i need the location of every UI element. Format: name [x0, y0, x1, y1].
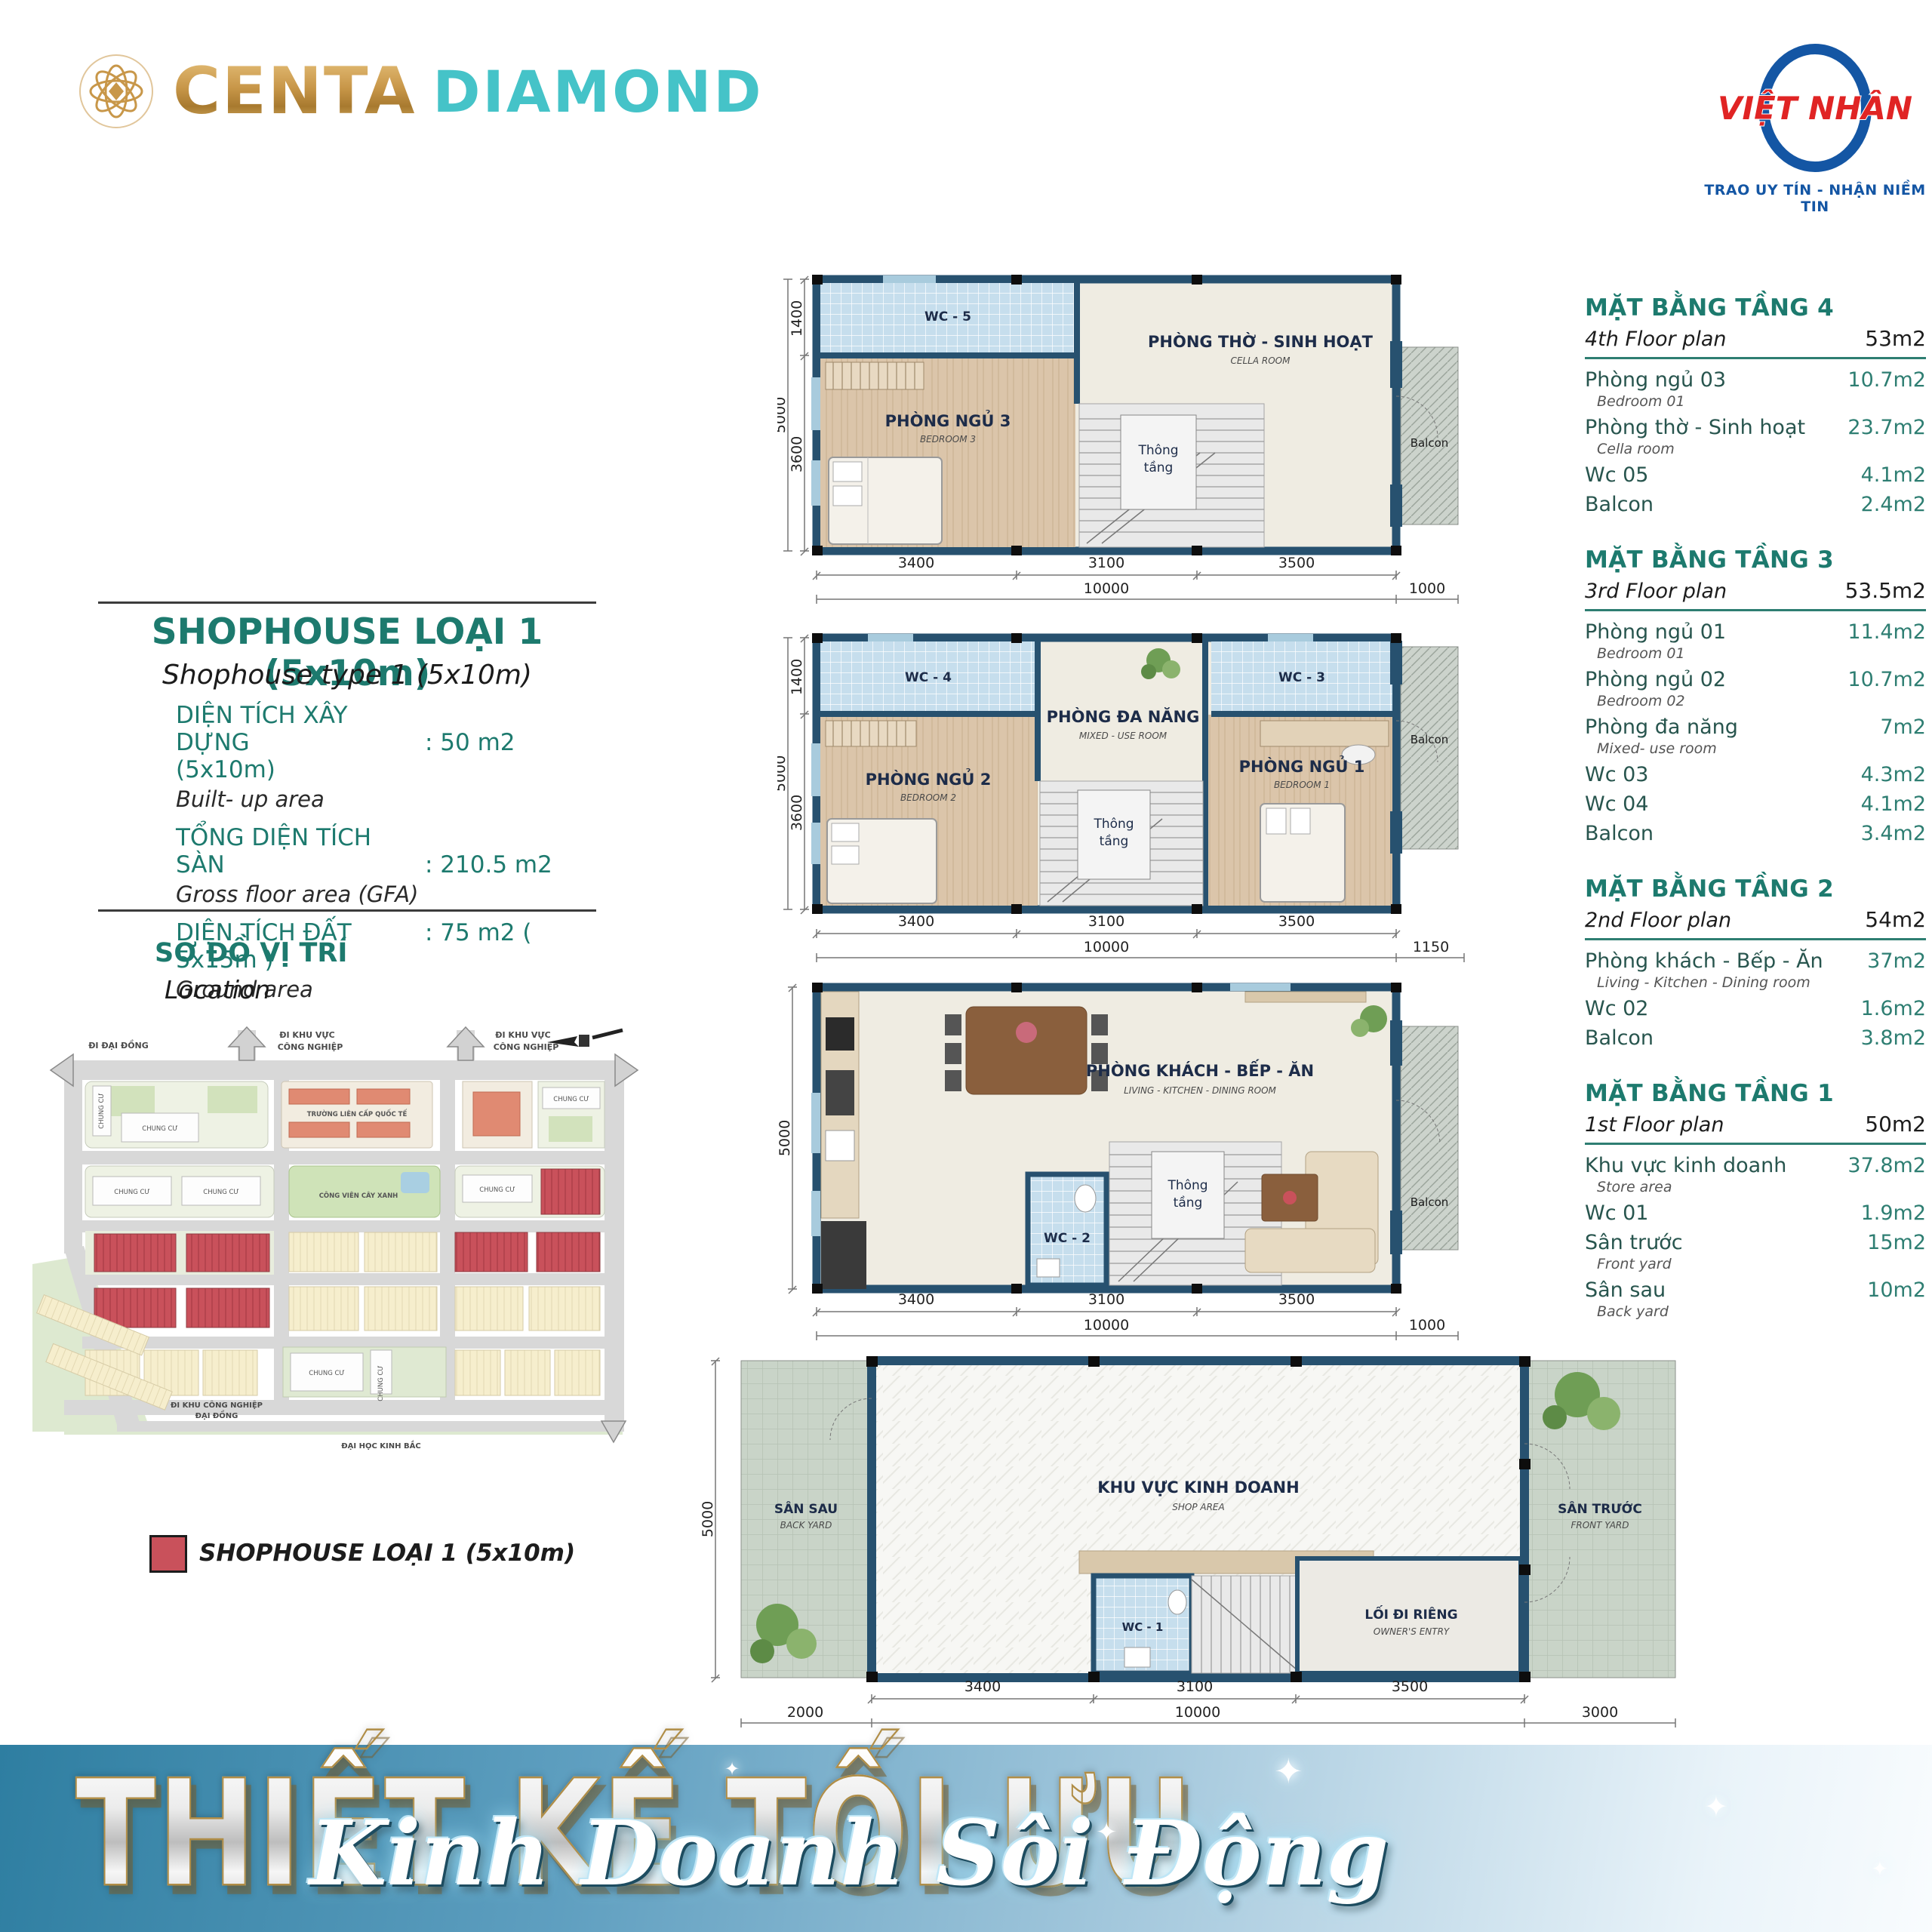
table-divider: [1585, 938, 1926, 940]
table-floor-1: MẶT BẰNG TẦNG 1 1st Floor plan50m2 Khu v…: [1585, 1080, 1926, 1320]
svg-text:BEDROOM 2: BEDROOM 2: [900, 792, 956, 803]
table-title: MẶT BẰNG TẦNG 2: [1585, 875, 1926, 903]
sparkle-icon: ✦: [724, 1758, 740, 1780]
tv-cabinet-icon: [1245, 992, 1366, 1002]
svg-text:BEDROOM 1: BEDROOM 1: [1274, 780, 1330, 790]
wardrobe-icon: [826, 362, 924, 389]
map-park-label: CÔNG VIÊN CÂY XANH: [319, 1191, 398, 1200]
table-row: Sân trướcFront yard15m2: [1585, 1231, 1926, 1272]
svg-text:3100: 3100: [1177, 1678, 1213, 1695]
svg-text:3000: 3000: [1582, 1704, 1618, 1721]
svg-text:CHUNG CƯ: CHUNG CƯ: [114, 1189, 149, 1196]
svg-text:3500: 3500: [1278, 555, 1315, 571]
svg-text:1400: 1400: [789, 300, 805, 337]
svg-text:FRONT YARD: FRONT YARD: [1571, 1520, 1629, 1531]
sparkle-icon: ✦: [1096, 1817, 1118, 1847]
svg-text:5000: 5000: [777, 397, 789, 433]
wc5-label: WC - 5: [924, 309, 971, 325]
page-subtitle: Shophouse type 1 (5x10m): [98, 660, 596, 691]
balcony: [1390, 341, 1458, 527]
map-row3: [85, 1231, 600, 1275]
table-row: Sân sauBack yard10m2: [1585, 1278, 1926, 1320]
bed-icon: [827, 819, 937, 903]
viet-nhan-oval-icon: VIỆT NHÂN: [1698, 42, 1932, 174]
sparkle-icon: ✦: [1872, 1858, 1888, 1881]
partner-tagline: TRAO UY TÍN - NHẬN NIỀM TIN: [1694, 182, 1932, 215]
table-row: Wc 044.1m2: [1585, 792, 1926, 816]
table-title: MẶT BẰNG TẦNG 1: [1585, 1080, 1926, 1107]
multi-room-label: PHÒNG ĐA NĂNG: [1047, 707, 1200, 726]
map-shophouse-block: [186, 1288, 269, 1327]
svg-text:3400: 3400: [898, 913, 934, 930]
svg-text:LIVING - KITCHEN - DINING ROOM: LIVING - KITCHEN - DINING ROOM: [1124, 1085, 1276, 1096]
svg-text:MIXED - USE ROOM: MIXED - USE ROOM: [1079, 731, 1168, 741]
map-row1: CHUNG CƯ CHUNG CƯ TRƯỜNG LIÊN CẤP QUỐC T…: [85, 1081, 605, 1148]
svg-text:tầng: tầng: [1100, 833, 1129, 849]
partner-logo: VIỆT NHÂN TRAO UY TÍN - NHẬN NIỀM TIN: [1694, 42, 1932, 215]
living-room-label: PHÒNG KHÁCH - BẾP - ĂN: [1086, 1059, 1314, 1080]
stairs: [1079, 404, 1264, 547]
table-row: Wc 011.9m2: [1585, 1201, 1926, 1225]
svg-text:OWNER'S ENTRY: OWNER'S ENTRY: [1374, 1626, 1451, 1637]
divider-bottom: [98, 909, 596, 912]
svg-text:3100: 3100: [1088, 1291, 1124, 1308]
svg-text:3500: 3500: [1278, 1291, 1315, 1308]
table-total: 53m2: [1865, 326, 1926, 351]
location-title: SƠ ĐỒ VỊ TRÍ: [155, 938, 347, 968]
table-rows: Phòng khách - Bếp - ĂnLiving - Kitchen -…: [1585, 949, 1926, 1050]
svg-text:5000: 5000: [777, 755, 789, 792]
table-subtitle: 3rd Floor plan: [1585, 580, 1727, 603]
svg-text:3400: 3400: [898, 1291, 934, 1308]
balcony: [1390, 641, 1458, 854]
sparkle-icon: ✦: [1274, 1751, 1303, 1792]
floor-plan-1: SÂN SAU BACK YARD SÂN TRƯỚC FRONT YARD K…: [702, 1353, 1690, 1734]
map-label-di-dai-dong: ĐI ĐẠI ĐỒNG: [88, 1039, 149, 1051]
svg-text:1150: 1150: [1413, 939, 1449, 955]
svg-text:SHOP AREA: SHOP AREA: [1172, 1502, 1224, 1512]
bed-icon: [1260, 804, 1345, 902]
location-subtitle: Location: [165, 975, 270, 1004]
svg-text:CÔNG NGHIỆP: CÔNG NGHIỆP: [494, 1042, 559, 1052]
balcony: [1390, 1020, 1458, 1254]
front-yard-label: SÂN TRƯỚC: [1558, 1500, 1642, 1517]
table-rows: Phòng ngủ 01Bedroom 0111.4m2Phòng ngủ 02…: [1585, 620, 1926, 845]
table-total: 53.5m2: [1845, 578, 1926, 603]
map-row2: CHUNG CƯ CHUNG CƯ CÔNG VIÊN CÂY XANH CHU…: [85, 1166, 605, 1217]
svg-text:CHUNG CƯ: CHUNG CƯ: [377, 1365, 385, 1401]
bedroom2-label: PHÒNG NGỦ 2: [866, 768, 992, 789]
bottom-banner: THIẾT KẾ TỐI ƯU Kinh Doanh Sôi Động ✦ ✦ …: [0, 1745, 1932, 1932]
floor-plan-4: Thông tầng WC - 5 PHÒNG NGỦ 3 BEDROOM 3 …: [777, 272, 1502, 608]
svg-text:CHUNG CƯ: CHUNG CƯ: [142, 1125, 177, 1133]
svg-text:Thông: Thông: [1093, 817, 1134, 832]
map-shophouse-block: [541, 1169, 600, 1214]
svg-text:3400: 3400: [898, 555, 934, 571]
dining-table-icon: [945, 1007, 1108, 1094]
table-subtitle: 4th Floor plan: [1585, 328, 1727, 351]
table-floor-4: MẶT BẰNG TẦNG 4 4th Floor plan53m2 Phòng…: [1585, 294, 1926, 516]
table-total: 50m2: [1865, 1112, 1926, 1137]
table-title: MẶT BẰNG TẦNG 4: [1585, 294, 1926, 321]
svg-text:BEDROOM 3: BEDROOM 3: [920, 434, 976, 445]
cella-room-label: PHÒNG THỜ - SINH HOẠT: [1148, 332, 1374, 351]
map-shophouse-block: [94, 1234, 176, 1272]
table-row: Wc 021.6m2: [1585, 997, 1926, 1020]
divider-top: [98, 601, 596, 604]
wc1-label: WC - 1: [1122, 1620, 1164, 1634]
table-row: Phòng ngủ 01Bedroom 0111.4m2: [1585, 620, 1926, 662]
table-floor-2: MẶT BẰNG TẦNG 2 2nd Floor plan54m2 Phòng…: [1585, 875, 1926, 1050]
svg-text:10000: 10000: [1084, 1317, 1129, 1334]
map-row4: [94, 1287, 600, 1331]
table-subtitle: 1st Floor plan: [1585, 1113, 1724, 1137]
bed-icon: [829, 457, 942, 544]
svg-text:5000: 5000: [702, 1501, 716, 1537]
table-row: Phòng thờ - Sinh hoạtCella room23.7m2: [1585, 416, 1926, 457]
wc3-label: WC - 3: [1278, 670, 1325, 685]
svg-text:10000: 10000: [1175, 1704, 1220, 1721]
svg-text:5000: 5000: [777, 1120, 793, 1156]
svg-text:CELLA ROOM: CELLA ROOM: [1231, 355, 1291, 366]
table-floor-3: MẶT BẰNG TẦNG 3 3rd Floor plan53.5m2 Phò…: [1585, 546, 1926, 845]
wc4-label: WC - 4: [905, 670, 952, 685]
map-shophouse-block: [186, 1234, 269, 1272]
wc2-label: WC - 2: [1044, 1231, 1091, 1246]
svg-text:1000: 1000: [1409, 580, 1445, 597]
svg-text:3100: 3100: [1088, 913, 1124, 930]
table-rows: Khu vực kinh doanhStore area37.8m2Wc 011…: [1585, 1154, 1926, 1320]
shop-area-label: KHU VỰC KINH DOANH: [1097, 1478, 1299, 1497]
svg-text:CHUNG CƯ: CHUNG CƯ: [553, 1096, 589, 1103]
table-row: Wc 054.1m2: [1585, 463, 1926, 487]
svg-text:CHUNG CƯ: CHUNG CƯ: [479, 1186, 515, 1194]
table-divider: [1585, 609, 1926, 611]
wardrobe-icon: [826, 721, 916, 746]
table-row: Balcon3.8m2: [1585, 1026, 1926, 1050]
table-row: Phòng khách - Bếp - ĂnLiving - Kitchen -…: [1585, 949, 1926, 991]
table-title: MẶT BẰNG TẦNG 3: [1585, 546, 1926, 574]
svg-text:Balcon: Balcon: [1411, 1195, 1449, 1209]
svg-text:Thông: Thông: [1137, 443, 1178, 458]
svg-text:ĐI KHU CÔNG NGHIỆP: ĐI KHU CÔNG NGHIỆP: [171, 1400, 263, 1410]
svg-text:tầng: tầng: [1144, 460, 1174, 475]
table-divider: [1585, 357, 1926, 359]
brand-logo: CENTA DIAMOND: [72, 47, 764, 136]
spec-item: TỔNG DIỆN TÍCH SÀN: 210.5 m2 Gross floor…: [176, 824, 614, 907]
partner-name: VIỆT NHÂN: [1718, 89, 1912, 127]
svg-text:tầng: tầng: [1174, 1195, 1203, 1211]
bedroom1-label: PHÒNG NGỦ 1: [1239, 755, 1365, 776]
stairs: [1192, 1576, 1297, 1673]
table-row: Phòng đa năngMixed- use room7m2: [1585, 715, 1926, 757]
svg-text:ĐI KHU VỰC: ĐI KHU VỰC: [495, 1030, 550, 1040]
bedroom3-label: PHÒNG NGỦ 3: [885, 410, 1011, 430]
svg-text:10000: 10000: [1084, 939, 1129, 955]
table-row: Balcon3.4m2: [1585, 822, 1926, 845]
svg-text:2000: 2000: [787, 1704, 823, 1721]
svg-text:CHUNG CƯ: CHUNG CƯ: [98, 1093, 106, 1128]
svg-text:3500: 3500: [1392, 1678, 1428, 1695]
svg-text:3500: 3500: [1278, 913, 1315, 930]
map-label-dai-hoc: ĐẠI HỌC KINH BẮC: [341, 1439, 420, 1451]
svg-text:3600: 3600: [789, 795, 805, 831]
floor-tables: MẶT BẰNG TẦNG 4 4th Floor plan53m2 Phòng…: [1585, 294, 1926, 1350]
table-divider: [1585, 1143, 1926, 1145]
table-subtitle: 2nd Floor plan: [1585, 909, 1731, 932]
svg-text:Thông: Thông: [1167, 1178, 1207, 1193]
map-shophouse-block: [537, 1232, 600, 1272]
svg-text:ĐI KHU VỰC: ĐI KHU VỰC: [279, 1030, 334, 1040]
table-row: Phòng ngủ 03Bedroom 0110.7m2: [1585, 368, 1926, 410]
table-row: Wc 034.3m2: [1585, 763, 1926, 786]
floor-plan-2: PHÒNG KHÁCH - BẾP - ĂN LIVING - KITCHEN …: [777, 980, 1502, 1351]
svg-text:BACK YARD: BACK YARD: [780, 1520, 832, 1531]
wc2-room: [1028, 1174, 1106, 1285]
svg-text:3100: 3100: [1088, 555, 1124, 571]
svg-text:10000: 10000: [1084, 580, 1129, 597]
table-total: 54m2: [1865, 907, 1926, 932]
svg-text:3600: 3600: [789, 436, 805, 472]
svg-text:CHUNG CƯ: CHUNG CƯ: [203, 1189, 238, 1196]
svg-text:Balcon: Balcon: [1411, 436, 1449, 450]
svg-text:CHUNG CƯ: CHUNG CƯ: [309, 1370, 344, 1377]
banner-subtitle: Kinh Doanh Sôi Động: [309, 1801, 1389, 1906]
back-yard-label: SÂN SAU: [774, 1500, 838, 1517]
brand-suffix: DIAMOND: [432, 58, 763, 125]
table-rows: Phòng ngủ 03Bedroom 0110.7m2Phòng thờ - …: [1585, 368, 1926, 516]
svg-text:1400: 1400: [789, 659, 805, 695]
map-shophouse-block: [455, 1232, 528, 1272]
svg-text:CÔNG NGHIỆP: CÔNG NGHIỆP: [278, 1042, 343, 1052]
legend-swatch: [149, 1535, 187, 1573]
table-row: Balcon2.4m2: [1585, 493, 1926, 516]
spec-item: DIỆN TÍCH XÂY DỰNG: 50 m2 (5x10m) Built-…: [176, 702, 614, 812]
owner-entry-label: LỐI ĐI RIÊNG: [1364, 1604, 1457, 1623]
table-row: Khu vực kinh doanhStore area37.8m2: [1585, 1154, 1926, 1195]
sparkle-icon: ✦: [1704, 1790, 1728, 1823]
svg-text:Balcon: Balcon: [1411, 733, 1449, 746]
centa-flower-icon: [72, 47, 161, 136]
table-row: Phòng ngủ 02Bedroom 0210.7m2: [1585, 668, 1926, 709]
location-map: CHUNG CƯ CHUNG CƯ TRƯỜNG LIÊN CẤP QUỐC T…: [19, 1008, 664, 1472]
brand-name: CENTA: [173, 54, 416, 129]
legend-label: SHOPHOUSE LOẠI 1 (5x10m): [199, 1540, 575, 1567]
svg-text:3400: 3400: [964, 1678, 1001, 1695]
floor-plan-3: Thông tầng WC - 4 WC - 3 PHÒNG ĐA NĂNG M…: [777, 630, 1502, 970]
svg-text:1000: 1000: [1409, 1317, 1445, 1334]
